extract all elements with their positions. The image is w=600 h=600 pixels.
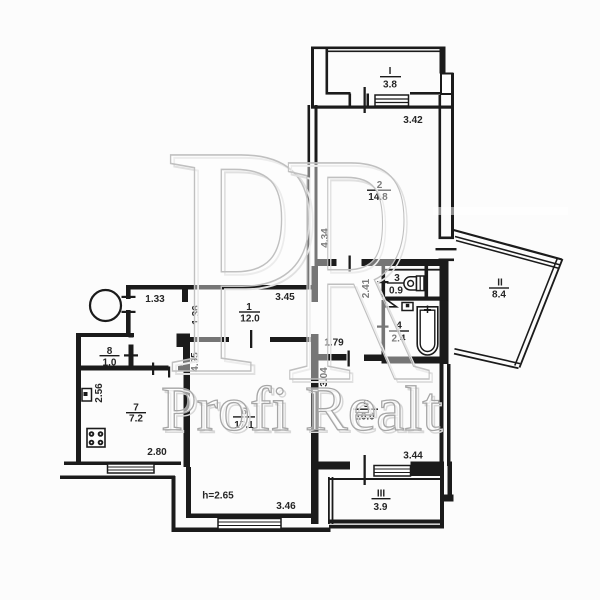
svg-text:III: III [377,489,386,500]
svg-text:3.9: 3.9 [374,502,388,513]
svg-text:Profi Realt: Profi Realt [161,373,440,444]
svg-text:I: I [389,66,392,77]
svg-text:h=2.65: h=2.65 [202,491,234,502]
svg-text:8.4: 8.4 [492,290,506,301]
svg-text:3.46: 3.46 [276,501,296,512]
svg-text:7.2: 7.2 [129,414,143,425]
svg-text:7: 7 [133,403,139,414]
svg-text:2.80: 2.80 [147,447,167,458]
svg-text:1.0: 1.0 [103,358,117,369]
svg-text:2.56: 2.56 [94,383,105,403]
svg-text:II: II [497,278,503,289]
